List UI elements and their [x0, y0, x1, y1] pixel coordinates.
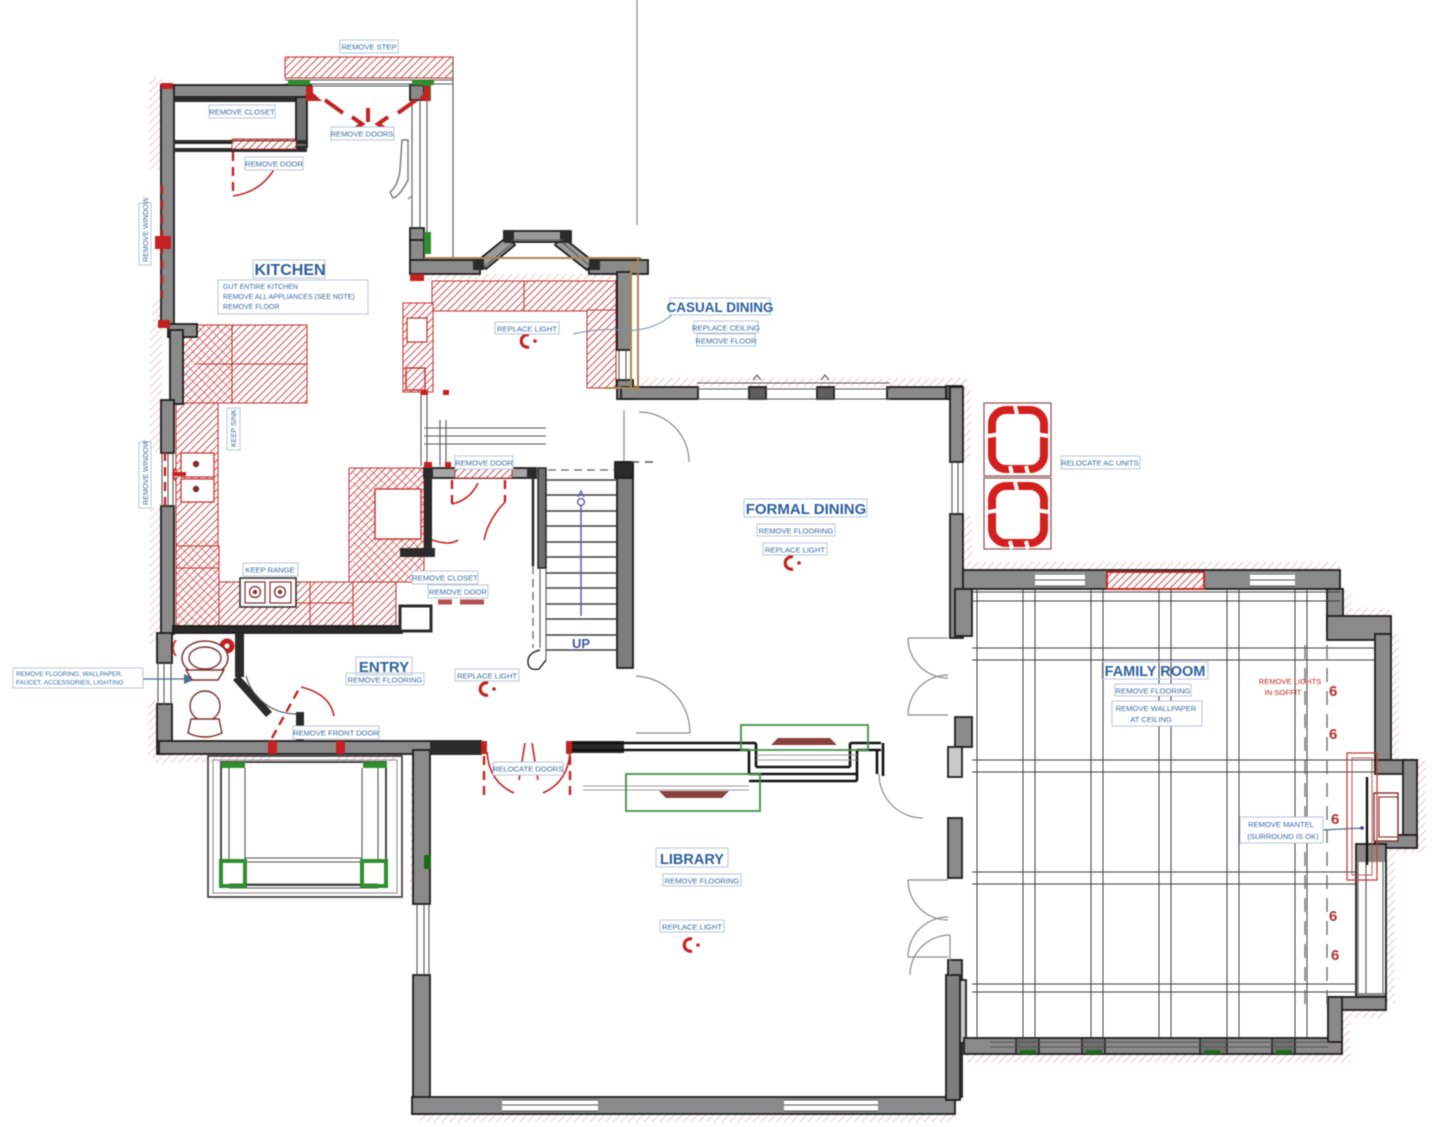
- svg-text:6: 6: [1329, 683, 1337, 700]
- svg-text:UP: UP: [572, 636, 590, 651]
- svg-text:LIBRARY: LIBRARY: [660, 852, 724, 868]
- svg-text:REMOVE FLOORING: REMOVE FLOORING: [665, 877, 740, 886]
- svg-text:FAUCET, ACCESSORIES, LIGHTING: FAUCET, ACCESSORIES, LIGHTING: [16, 680, 124, 687]
- svg-text:KITCHEN: KITCHEN: [254, 262, 325, 279]
- svg-text:REPLACE CEILING: REPLACE CEILING: [692, 324, 760, 333]
- svg-text:REMOVE CLOSET: REMOVE CLOSET: [209, 108, 275, 117]
- svg-text:FORMAL DINING: FORMAL DINING: [746, 501, 867, 518]
- svg-text:REMOVE FRONT DOOR: REMOVE FRONT DOOR: [293, 729, 379, 738]
- svg-text:6: 6: [1329, 908, 1337, 925]
- svg-text:REMOVE WALLPAPER: REMOVE WALLPAPER: [1116, 704, 1197, 713]
- svg-text:REMOVE DOOR: REMOVE DOOR: [429, 588, 487, 597]
- svg-text:REMOVE DOOR: REMOVE DOOR: [245, 160, 303, 169]
- svg-text:REMOVE WINDOW: REMOVE WINDOW: [141, 440, 150, 505]
- svg-text:REMOVE FLOORING, WALLPAPER,: REMOVE FLOORING, WALLPAPER,: [16, 671, 123, 678]
- svg-text:REMOVE DOOR: REMOVE DOOR: [455, 459, 513, 468]
- svg-text:REMOVE ALL APPLIANCES (SEE NOT: REMOVE ALL APPLIANCES (SEE NOTE): [223, 294, 355, 301]
- svg-text:REMOVE FLOORING: REMOVE FLOORING: [348, 676, 423, 685]
- svg-text:IN SOFFIT: IN SOFFIT: [1265, 688, 1302, 697]
- svg-text:REPLACE LIGHT: REPLACE LIGHT: [765, 546, 825, 555]
- svg-text:REMOVE CLOSET: REMOVE CLOSET: [412, 574, 478, 583]
- svg-text:6: 6: [1329, 726, 1337, 743]
- svg-text:KEEP SINK: KEEP SINK: [229, 409, 238, 447]
- svg-text:RELOCATE AC UNITS: RELOCATE AC UNITS: [1061, 459, 1139, 468]
- svg-text:6: 6: [1331, 947, 1339, 964]
- svg-text:6: 6: [1331, 811, 1339, 828]
- svg-text:FAMILY ROOM: FAMILY ROOM: [1105, 664, 1206, 680]
- svg-text:REMOVE FLOORING: REMOVE FLOORING: [759, 527, 834, 536]
- svg-text:REMOVE FLOOR: REMOVE FLOOR: [695, 337, 757, 346]
- svg-text:REMOVE WINDOW: REMOVE WINDOW: [141, 197, 150, 262]
- svg-text:REMOVE FLOOR: REMOVE FLOOR: [223, 304, 279, 311]
- svg-text:CASUAL DINING: CASUAL DINING: [666, 300, 773, 315]
- svg-text:REMOVE FLOORING: REMOVE FLOORING: [1116, 687, 1191, 696]
- svg-text:REMOVE MANTEL: REMOVE MANTEL: [1248, 820, 1314, 829]
- svg-text:AT CEILING: AT CEILING: [1130, 715, 1172, 724]
- svg-text:ENTRY: ENTRY: [359, 659, 409, 676]
- svg-text:(SURROUND IS OK): (SURROUND IS OK): [1247, 832, 1319, 841]
- svg-text:REMOVE DOORS: REMOVE DOORS: [331, 130, 394, 139]
- svg-text:REPLACE LIGHT: REPLACE LIGHT: [662, 923, 722, 932]
- svg-text:GUT ENTIRE KITCHEN: GUT ENTIRE KITCHEN: [223, 284, 298, 291]
- svg-text:REPLACE LIGHT: REPLACE LIGHT: [457, 672, 517, 681]
- svg-text:RELOCATE DOORS: RELOCATE DOORS: [493, 765, 563, 774]
- svg-text:REPLACE LIGHT: REPLACE LIGHT: [497, 325, 557, 334]
- svg-text:REMOVE STEP: REMOVE STEP: [342, 43, 397, 52]
- svg-text:KEEP RANGE: KEEP RANGE: [245, 566, 294, 575]
- svg-text:REMOVE LIGHTS: REMOVE LIGHTS: [1259, 677, 1321, 686]
